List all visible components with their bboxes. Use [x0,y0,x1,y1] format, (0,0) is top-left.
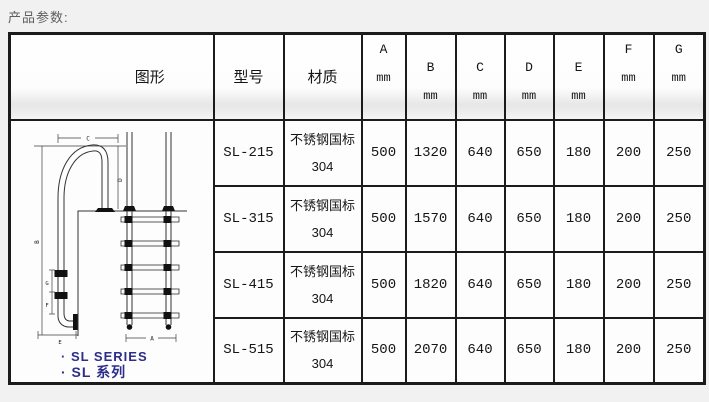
cell-e: 180 [554,318,604,384]
spec-table: 图形 型号 材质 Amm Bmm Cmm Dmm Emm Fmm Gmm [8,32,706,385]
cell-a: 500 [362,120,406,186]
header-material: 材质 [284,34,362,120]
header-figure: 图形 [10,34,214,120]
series-label-zh: · SL 系列 [61,364,213,381]
cell-material: 不锈钢国标304 [284,318,362,384]
cell-g: 250 [654,318,705,384]
cell-model: SL-515 [214,318,284,384]
dim-label-c: C [86,135,90,142]
dim-label-f: F [45,303,48,309]
handrail-tube [64,151,102,321]
cell-g: 250 [654,252,705,318]
cell-c: 640 [456,252,505,318]
cell-g: 250 [654,120,705,186]
cell-f: 200 [604,186,654,252]
cell-f: 200 [604,120,654,186]
cell-d: 650 [505,120,554,186]
header-dim-e: Emm [554,34,604,120]
cell-f: 200 [604,252,654,318]
table-row: C B D G F E A · SL SERIES · SL 系列 [10,120,705,186]
cell-a: 500 [362,252,406,318]
header-dim-g: Gmm [654,34,705,120]
cell-e: 180 [554,252,604,318]
page-title: 产品参数: [8,7,69,26]
cell-c: 640 [456,120,505,186]
handrail-tube [58,145,108,327]
series-labels: · SL SERIES · SL 系列 [11,349,213,381]
cell-e: 180 [554,186,604,252]
header-row: 图形 型号 材质 Amm Bmm Cmm Dmm Emm Fmm Gmm [10,34,705,120]
dim-label-e: E [58,340,61,346]
header-dim-a: Amm [362,34,406,120]
cell-material: 不锈钢国标304 [284,252,362,318]
cell-a: 500 [362,318,406,384]
header-model: 型号 [214,34,284,120]
cell-b: 1320 [406,120,456,186]
cell-model: SL-215 [214,120,284,186]
cell-d: 650 [505,186,554,252]
cell-b: 1570 [406,186,456,252]
header-dim-d: Dmm [505,34,554,120]
cell-b: 1820 [406,252,456,318]
dim-label-b: B [34,240,41,244]
cell-a: 500 [362,186,406,252]
product-parameters-page: 产品参数: 图形 型号 材质 Amm Bmm Cmm Dmm Emm Fmm G… [0,0,709,402]
cell-g: 250 [654,186,705,252]
dim-label-g: G [45,281,48,287]
cell-model: SL-315 [214,186,284,252]
dim-label-a: A [150,335,154,342]
cell-d: 650 [505,318,554,384]
header-dim-f: Fmm [604,34,654,120]
header-dim-c: Cmm [456,34,505,120]
cell-d: 650 [505,252,554,318]
header-dim-b: Bmm [406,34,456,120]
product-figure-cell: C B D G F E A · SL SERIES · SL 系列 [10,120,214,384]
cell-c: 640 [456,318,505,384]
cell-material: 不锈钢国标304 [284,120,362,186]
cell-b: 2070 [406,318,456,384]
dim-label-d: D [117,178,124,182]
cell-model: SL-415 [214,252,284,318]
cell-c: 640 [456,186,505,252]
cell-material: 不锈钢国标304 [284,186,362,252]
cell-e: 180 [554,120,604,186]
cell-f: 200 [604,318,654,384]
ladder-technical-drawing: C B D G F E A · SL SERIES · SL 系列 [11,124,213,381]
series-label-en: · SL SERIES [61,349,213,364]
